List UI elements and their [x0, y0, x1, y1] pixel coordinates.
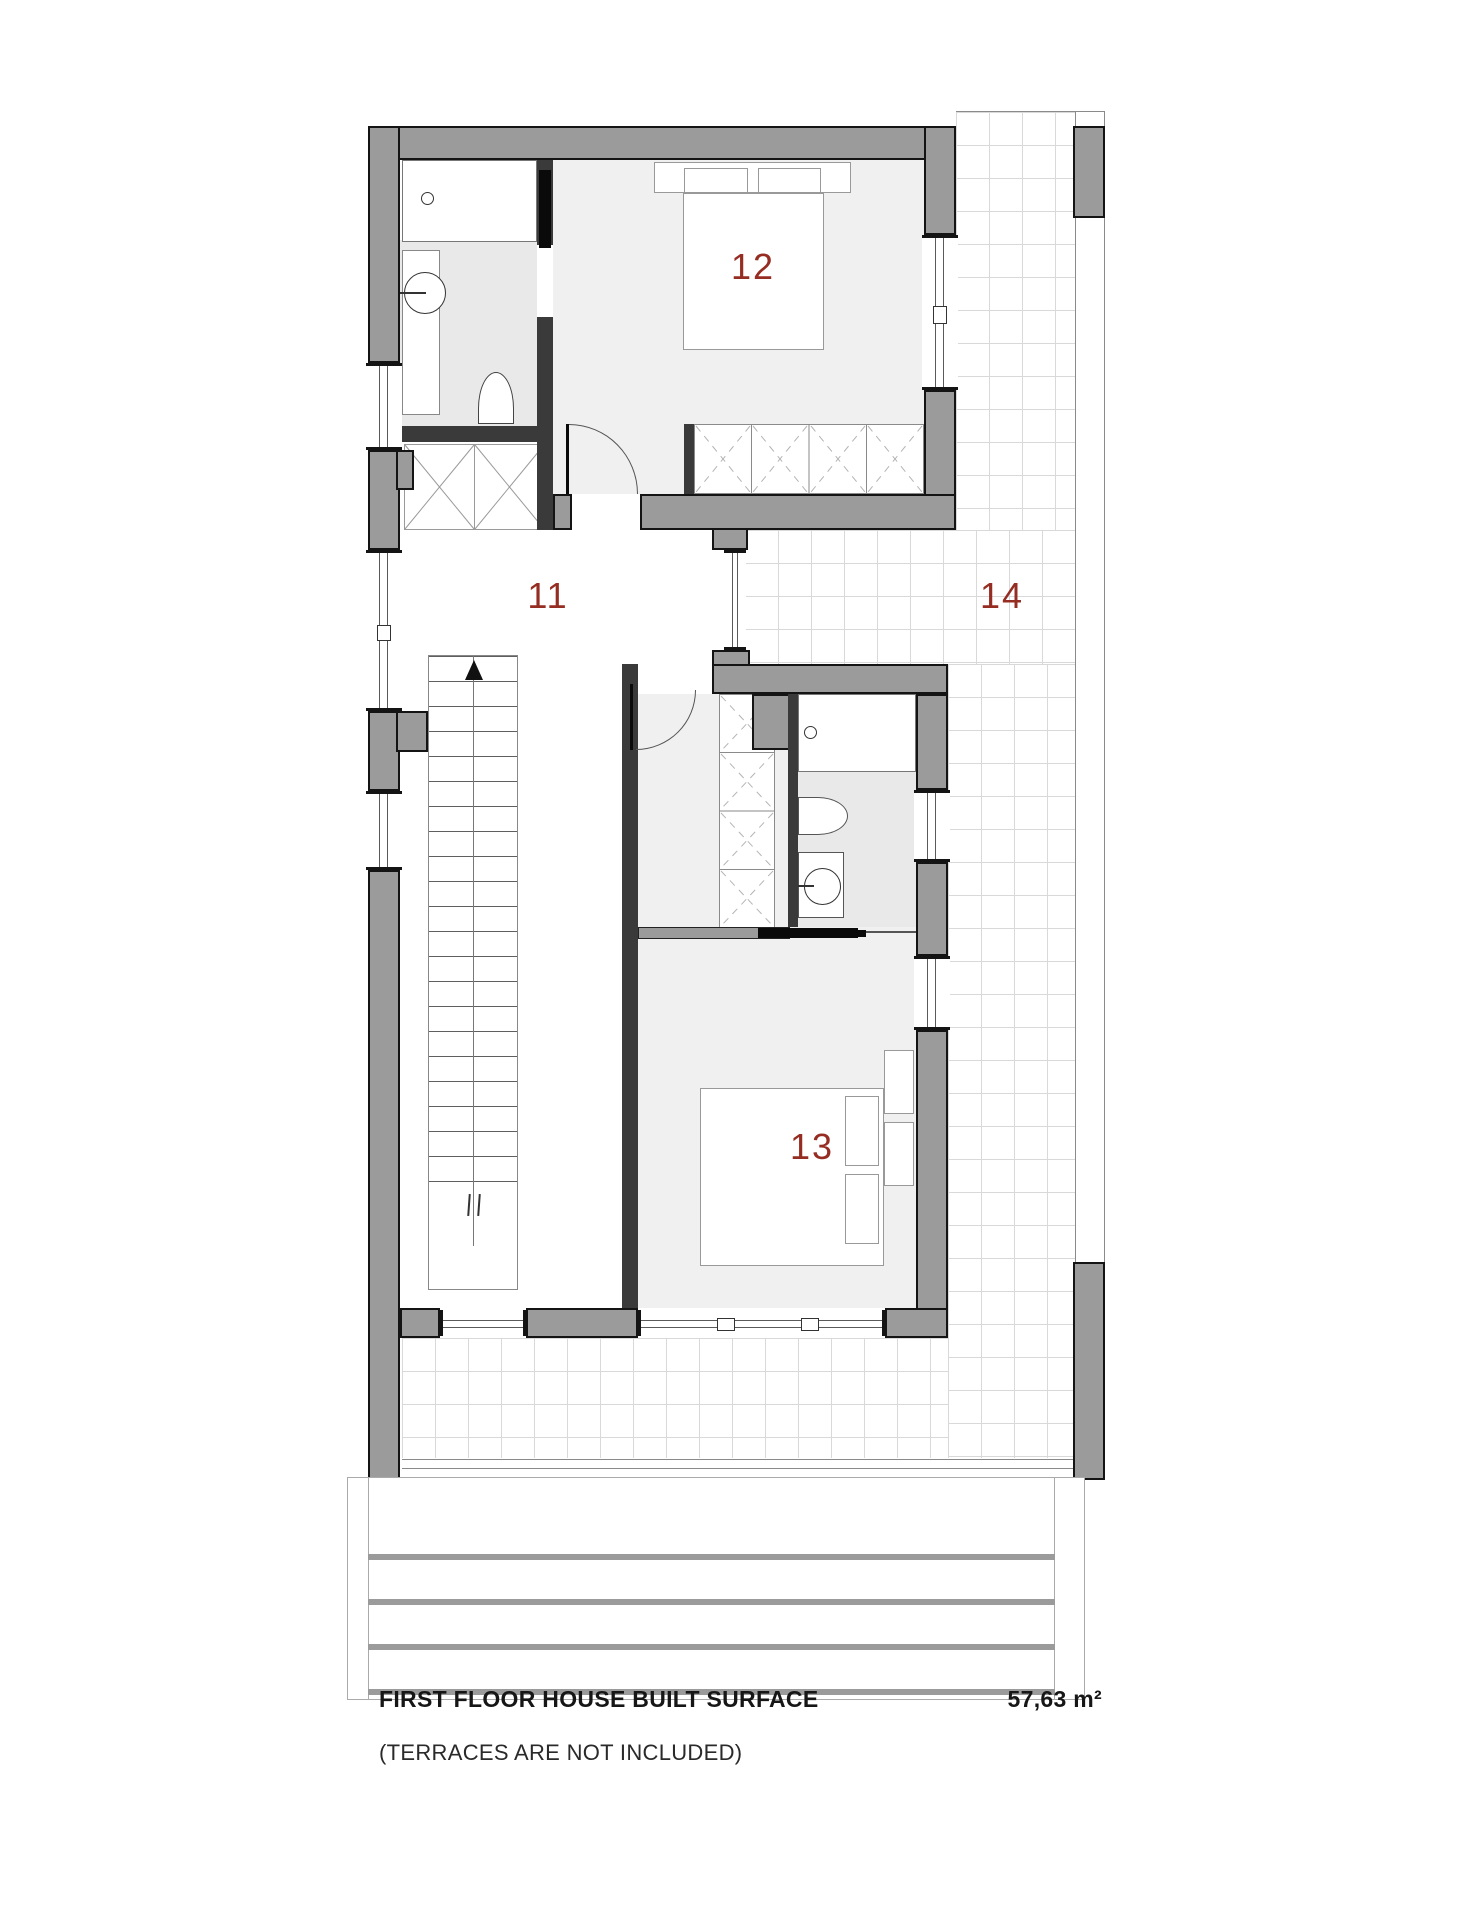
- terrace-tiles-mid: [745, 530, 1075, 664]
- window-bottom-bedroom-13: [638, 1310, 885, 1336]
- wall-hall-room13-separator: [622, 664, 638, 1308]
- plan-title: FIRST FLOOR HOUSE BUILT SURFACE: [379, 1686, 818, 1713]
- exterior-step-3: [368, 1644, 1055, 1650]
- wall-east-lower-seg-3: [916, 1030, 948, 1338]
- wall-left-jut-2: [396, 711, 428, 752]
- bed-12-pillow-left: [684, 168, 748, 193]
- room-label-bedroom-12: 12: [731, 246, 775, 288]
- wall-left-seg-1: [368, 126, 400, 363]
- wall-bath-lower-west: [788, 694, 798, 927]
- terrace-tiles-right: [948, 664, 1075, 1458]
- floor-plan: 11 12 13 14 FIRST FLOOR HOUSE BUILT SURF…: [0, 0, 1481, 1920]
- stair-center-line: [473, 656, 474, 1246]
- wall-12-bottom-stub: [553, 494, 572, 530]
- exterior-stairs: [347, 1477, 1085, 1700]
- bed-13-pillow-bottom: [845, 1174, 879, 1244]
- plan-area-value: 57,63 m²: [852, 1686, 1102, 1713]
- terrace-tiles-bottom: [402, 1338, 948, 1458]
- bed-13-nightstand-bottom: [884, 1122, 914, 1186]
- sink-tap-top: [398, 292, 426, 294]
- window-bathroom-lower-east: [914, 790, 950, 862]
- terrace-pillar-top-right: [1073, 126, 1105, 218]
- wall-bath-top-south: [400, 426, 553, 442]
- pocket-door-bath-top: [539, 170, 551, 248]
- window-left-hall-upper: [366, 550, 402, 711]
- wall-east-lower-seg-2: [916, 862, 948, 956]
- bed-13-pillow-top: [845, 1096, 879, 1166]
- wall-bath-lower-top: [712, 664, 948, 694]
- exterior-stairs-side-right: [1054, 1478, 1055, 1699]
- terrace-tiles-top-right: [956, 112, 1075, 530]
- door-13-leaf: [630, 684, 633, 750]
- wall-top: [368, 126, 956, 160]
- exterior-step-2: [368, 1599, 1055, 1605]
- plan-subtitle: (TERRACES ARE NOT INCLUDED): [379, 1740, 742, 1766]
- shower-drain-icon: [421, 192, 434, 205]
- window-bedroom-13-east: [914, 956, 950, 1030]
- bed-13-nightstand-top: [884, 1050, 914, 1114]
- wall-left-seg-4: [368, 870, 400, 1480]
- exterior-stairs-side-left: [368, 1478, 369, 1699]
- bed-12-pillow-right: [758, 168, 821, 193]
- wall-left-jut-1: [396, 450, 414, 490]
- sliding-door-handle: [854, 930, 866, 937]
- window-left-bathroom: [366, 363, 402, 450]
- window-bottom-stairwell: [440, 1310, 526, 1336]
- wall-east-lower-seg-1: [916, 694, 948, 790]
- terrace-railing-line-2: [402, 1468, 1075, 1469]
- wardrobe-12-side-wall: [684, 424, 694, 494]
- sliding-door-bath-lower: [758, 928, 858, 938]
- room-label-hall: 11: [527, 575, 568, 617]
- terrace-pillar-bottom-right: [1073, 1262, 1105, 1480]
- window-bedroom-12-east: [922, 235, 958, 390]
- wall-12-bottom: [640, 494, 956, 530]
- wall-stub-hall-window-top: [712, 528, 748, 550]
- staircase: [428, 655, 518, 1290]
- shower-drain-lower-icon: [804, 726, 817, 739]
- window-left-hall-lower: [366, 791, 402, 870]
- window-hall-east: [724, 550, 746, 650]
- stair-up-arrow-icon: [465, 660, 483, 680]
- room-label-terrace: 14: [980, 575, 1024, 617]
- wall-bottom-block-right: [885, 1308, 948, 1338]
- wall-bottom-block-mid: [526, 1308, 638, 1338]
- sill-line-bath-lower: [866, 931, 916, 933]
- wall-bottom-block-left: [400, 1308, 440, 1338]
- exterior-step-1: [368, 1554, 1055, 1560]
- wardrobe-bedroom-12: [694, 424, 924, 494]
- wall-bath12-separator-lower: [537, 317, 553, 530]
- wall-12-east-seg-1: [924, 126, 956, 235]
- terrace-railing-line-1: [402, 1459, 1075, 1460]
- hall-closet: [404, 444, 545, 530]
- room-label-bedroom-13: 13: [790, 1126, 834, 1168]
- terrace-edge-top: [956, 111, 1105, 112]
